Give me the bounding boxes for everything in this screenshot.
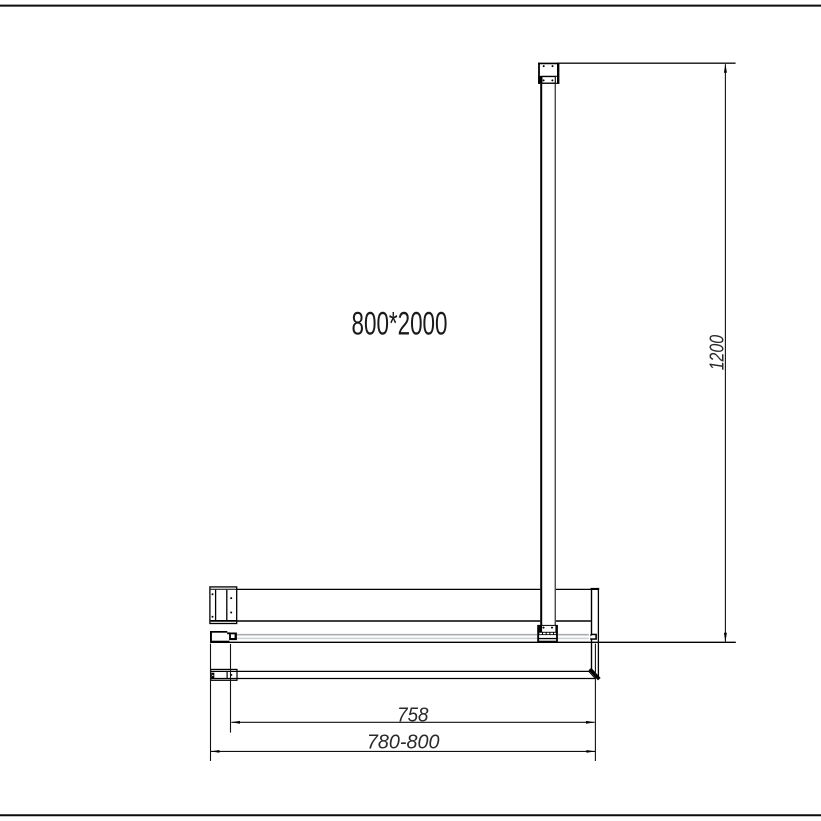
svg-text:780-800: 780-800 [367, 732, 440, 754]
svg-text:1200: 1200 [706, 335, 728, 370]
svg-text:800*2000: 800*2000 [352, 306, 448, 342]
svg-text:758: 758 [397, 704, 429, 727]
